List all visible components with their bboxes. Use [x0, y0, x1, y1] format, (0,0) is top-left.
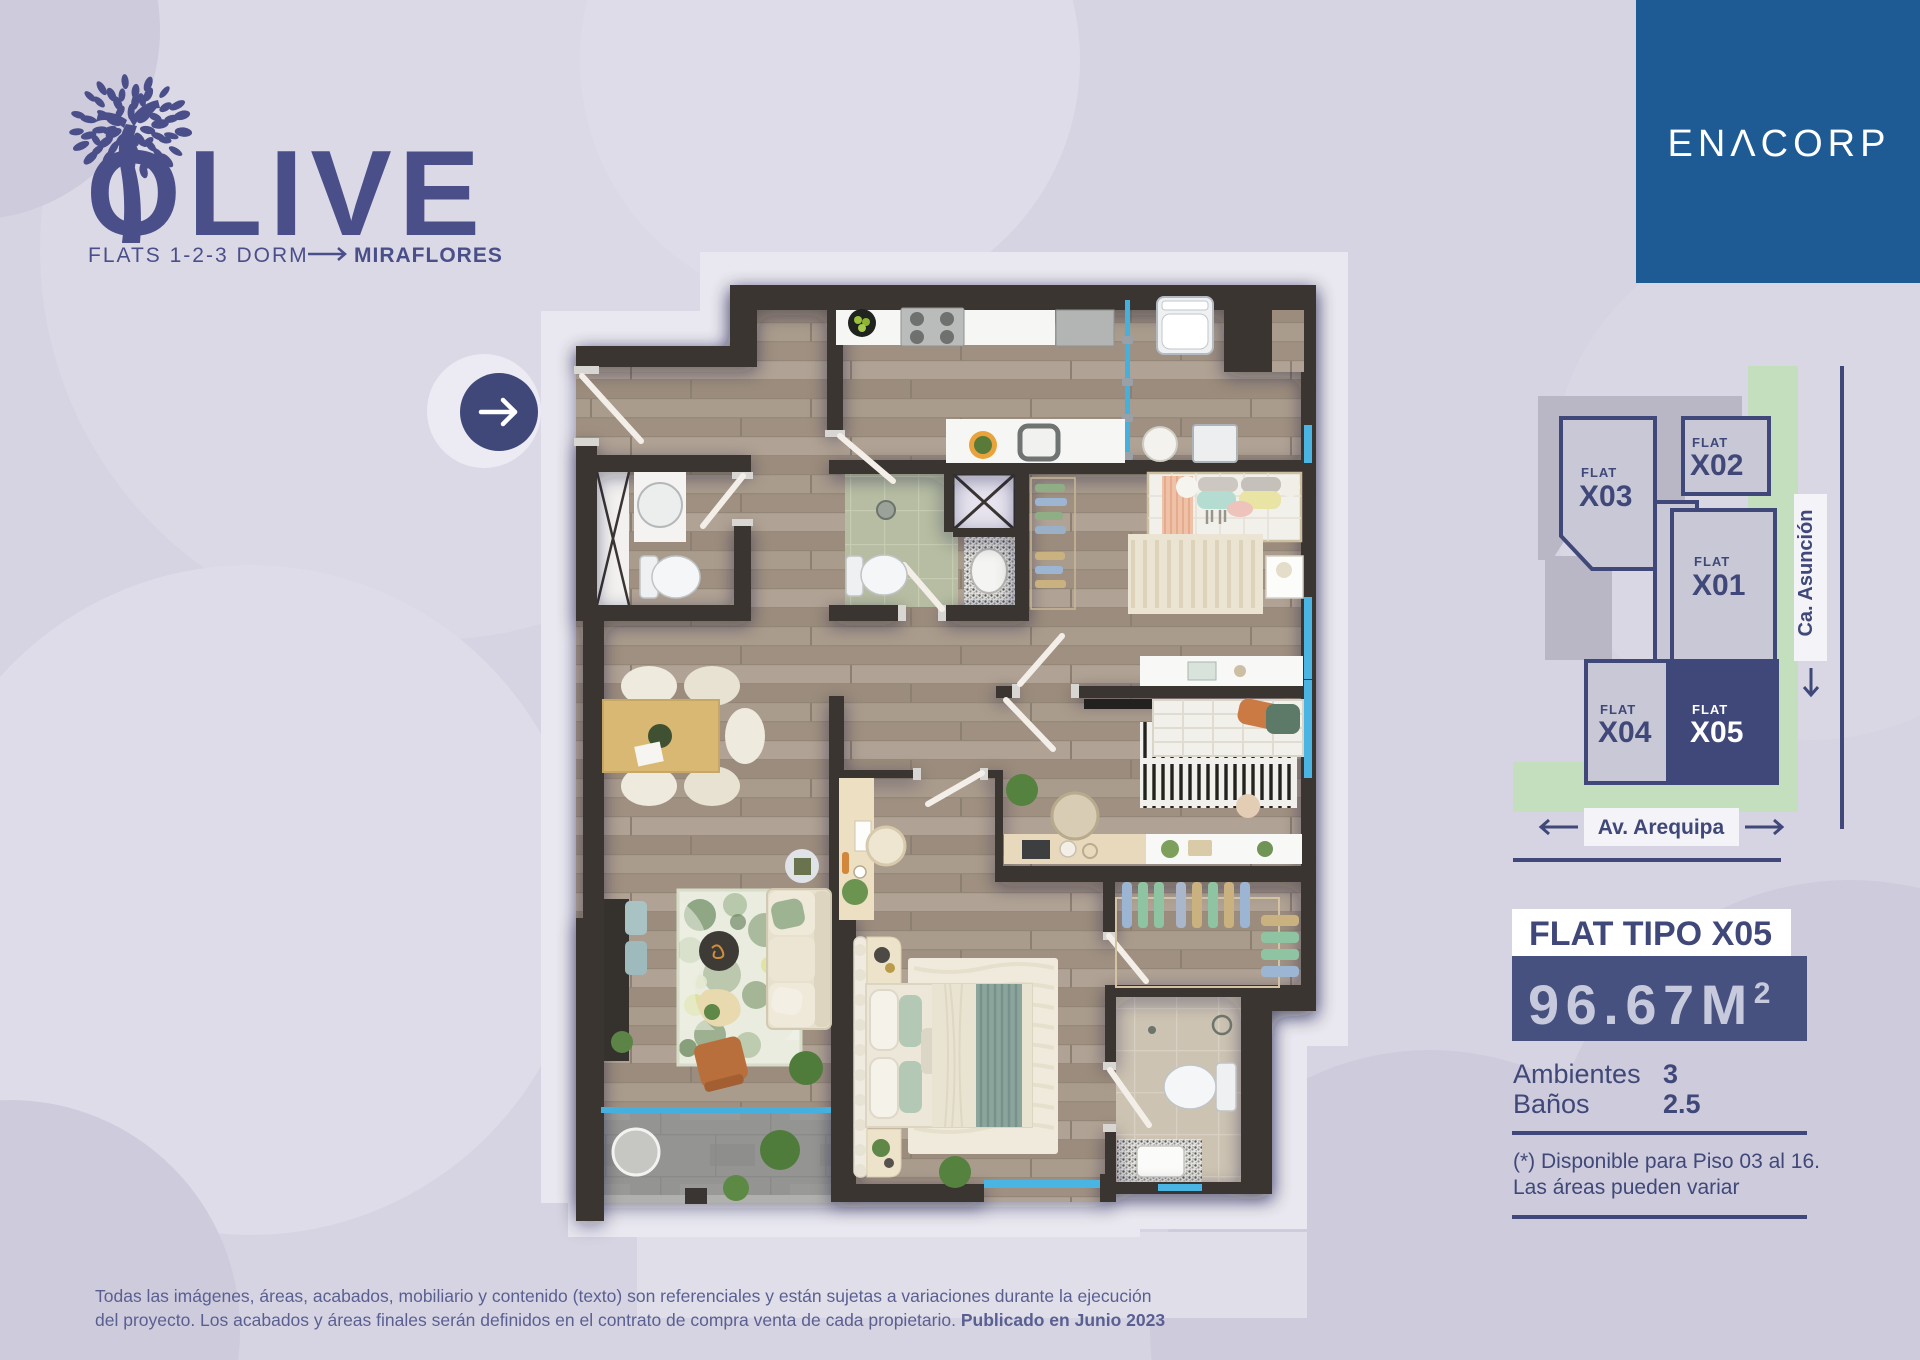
svg-text:2.5: 2.5 [1663, 1089, 1701, 1119]
svg-text:96.67M2: 96.67M2 [1528, 973, 1777, 1036]
svg-text:X05: X05 [1690, 716, 1743, 749]
svg-text:X03: X03 [1579, 480, 1632, 513]
svg-text:3: 3 [1663, 1059, 1678, 1089]
svg-text:Todas las imágenes, áreas, aca: Todas las imágenes, áreas, acabados, mob… [95, 1286, 1151, 1306]
svg-text:FLATS 1-2-3 DORM: FLATS 1-2-3 DORM [88, 244, 309, 267]
svg-text:X01: X01 [1692, 569, 1745, 602]
svg-text:FLAT: FLAT [1581, 465, 1617, 480]
svg-text:Las áreas pueden variar: Las áreas pueden variar [1513, 1176, 1739, 1199]
svg-text:FLAT: FLAT [1692, 702, 1728, 717]
svg-text:Baños: Baños [1513, 1089, 1590, 1119]
svg-text:X02: X02 [1690, 449, 1743, 482]
svg-text:FLAT TIPO X05: FLAT TIPO X05 [1529, 915, 1772, 953]
svg-text:Ambientes: Ambientes [1513, 1059, 1641, 1089]
svg-text:Ca. Asunción: Ca. Asunción [1795, 509, 1817, 636]
svg-text:del proyecto. Los acabados y á: del proyecto. Los acabados y áreas final… [95, 1310, 1165, 1330]
svg-text:Av. Arequipa: Av. Arequipa [1598, 816, 1725, 839]
svg-text:FLAT: FLAT [1600, 702, 1636, 717]
svg-text:FLAT: FLAT [1692, 435, 1728, 450]
svg-text:FLAT: FLAT [1694, 554, 1730, 569]
svg-text:ENΛCORP: ENΛCORP [1668, 123, 1891, 165]
svg-text:(*) Disponible para Piso 03 al: (*) Disponible para Piso 03 al 16. [1513, 1150, 1820, 1173]
svg-text:X04: X04 [1598, 716, 1652, 749]
svg-text:MIRAFLORES: MIRAFLORES [354, 244, 503, 267]
